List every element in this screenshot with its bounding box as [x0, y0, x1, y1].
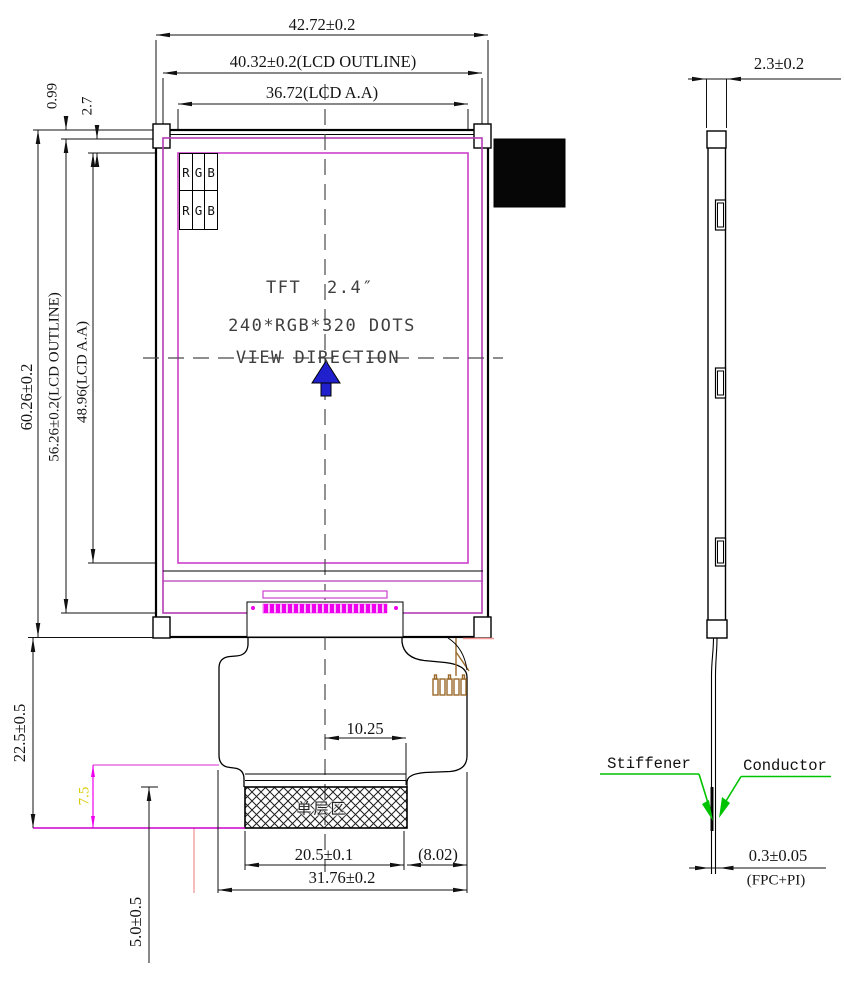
dim-contact-width: 20.5±0.1 — [295, 845, 354, 865]
black-tape-block — [494, 139, 565, 207]
dim-total-width: 42.72±0.2 — [289, 15, 356, 35]
drawing-canvas: 42.72±0.2 40.32±0.2(LCD OUTLINE) 36.72(L… — [0, 0, 844, 988]
corner-notch-tl — [153, 124, 170, 148]
side-clip-1 — [716, 200, 726, 230]
dim-tail-length: 22.5±0.5 — [10, 704, 30, 763]
side-body — [707, 131, 727, 638]
pixel-structure-row-1: R G B — [179, 153, 218, 191]
dim-stiffener-height: 7.5 — [77, 787, 94, 806]
pixel-cell-r: R — [180, 191, 193, 229]
front-view — [28, 35, 565, 963]
pixel-cell-r: R — [180, 154, 193, 190]
corner-notch-br — [474, 617, 491, 638]
corner-notch-bl — [153, 617, 170, 638]
stiffener-bar — [711, 787, 714, 831]
pixel-structure-row-2: R G B — [179, 190, 218, 230]
side-top-dimension — [688, 79, 841, 128]
dim-aa-top: 2.7 — [80, 97, 97, 116]
driver-ic-rect — [263, 591, 387, 598]
dim-fpc-thickness: 0.3±0.05 — [749, 846, 808, 866]
conductor-label: Conductor — [743, 757, 827, 775]
screen-text-view-direction: VIEW DIRECTION — [236, 348, 400, 368]
dim-center-offset: 10.25 — [346, 719, 383, 739]
stiffener-reference-lines — [33, 765, 245, 828]
hatch-area-label: 单层区 — [296, 798, 347, 819]
side-clip-2 — [716, 368, 726, 398]
pixel-cell-g: G — [193, 154, 206, 190]
side-clip-3 — [716, 538, 726, 566]
screen-text-size: TFT 2.4″ — [266, 278, 374, 298]
dim-bezel-top: 0.99 — [45, 83, 62, 109]
side-fpc-tail — [711, 638, 718, 874]
stiffener-label: Stiffener — [607, 755, 691, 773]
contact-strip — [263, 604, 387, 613]
screen-text-resolution: 240*RGB*320 DOTS — [228, 316, 416, 336]
conductor-arrow — [719, 797, 730, 818]
dim-thickness: 2.3±0.2 — [754, 54, 804, 74]
dim-tail-width: 31.76±0.2 — [309, 868, 376, 888]
dim-tail-bottom: 5.0±0.5 — [126, 897, 146, 947]
drawing-linework — [0, 0, 844, 988]
pixel-cell-g: G — [193, 191, 206, 229]
dim-outline-width: 40.32±0.2(LCD OUTLINE) — [230, 52, 416, 72]
dim-edge-ref: (8.02) — [418, 845, 458, 865]
dim-aa-height: 48.96(LCD A.A) — [75, 321, 92, 423]
dim-aa-width: 36.72(LCD A.A) — [266, 83, 378, 103]
pixel-cell-b: B — [205, 154, 217, 190]
pixel-cell-b: B — [205, 191, 217, 229]
dim-outline-height: 56.26±0.2(LCD OUTLINE) — [47, 292, 64, 461]
fpc-connector-detail — [433, 638, 469, 695]
fpc-note: (FPC+PI) — [747, 873, 805, 890]
dim-total-height: 60.26±0.2 — [17, 364, 37, 431]
